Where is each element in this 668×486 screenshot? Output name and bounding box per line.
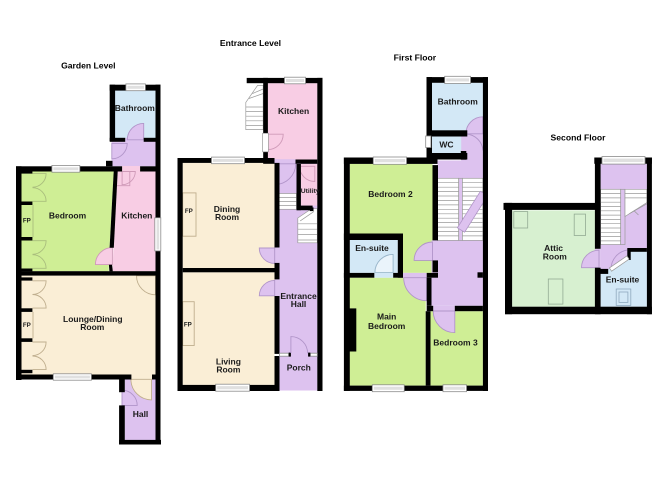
svg-text:Bathroom: Bathroom [438,97,479,107]
svg-text:En-suite: En-suite [606,275,640,285]
svg-text:Bathroom: Bathroom [115,103,156,113]
svg-text:Room: Room [216,364,241,374]
svg-text:Entrance Level: Entrance Level [220,38,281,48]
svg-text:Hall: Hall [133,409,149,419]
svg-text:Room: Room [80,322,105,332]
svg-text:Second Floor: Second Floor [551,133,607,143]
svg-text:En-suite: En-suite [355,243,389,253]
svg-text:Bedroom: Bedroom [49,210,87,220]
svg-text:Porch: Porch [287,363,311,373]
svg-text:Hall: Hall [291,299,307,309]
svg-text:Bedroom 2: Bedroom 2 [368,189,413,199]
svg-text:FP: FP [23,322,31,329]
svg-text:Room: Room [543,251,568,261]
svg-text:Room: Room [215,212,240,222]
svg-text:Garden Level: Garden Level [61,61,115,71]
svg-text:Kitchen: Kitchen [121,210,152,220]
svg-text:Main: Main [377,311,396,321]
svg-text:WC: WC [439,139,453,149]
svg-text:Kitchen: Kitchen [278,106,309,116]
svg-text:Bedroom 3: Bedroom 3 [433,338,478,348]
svg-text:FP: FP [23,218,31,225]
svg-text:Utility: Utility [301,188,320,195]
svg-text:FP: FP [185,208,193,215]
svg-text:FP: FP [184,322,192,329]
svg-text:Bedroom: Bedroom [368,321,406,331]
svg-text:First Floor: First Floor [394,53,437,63]
